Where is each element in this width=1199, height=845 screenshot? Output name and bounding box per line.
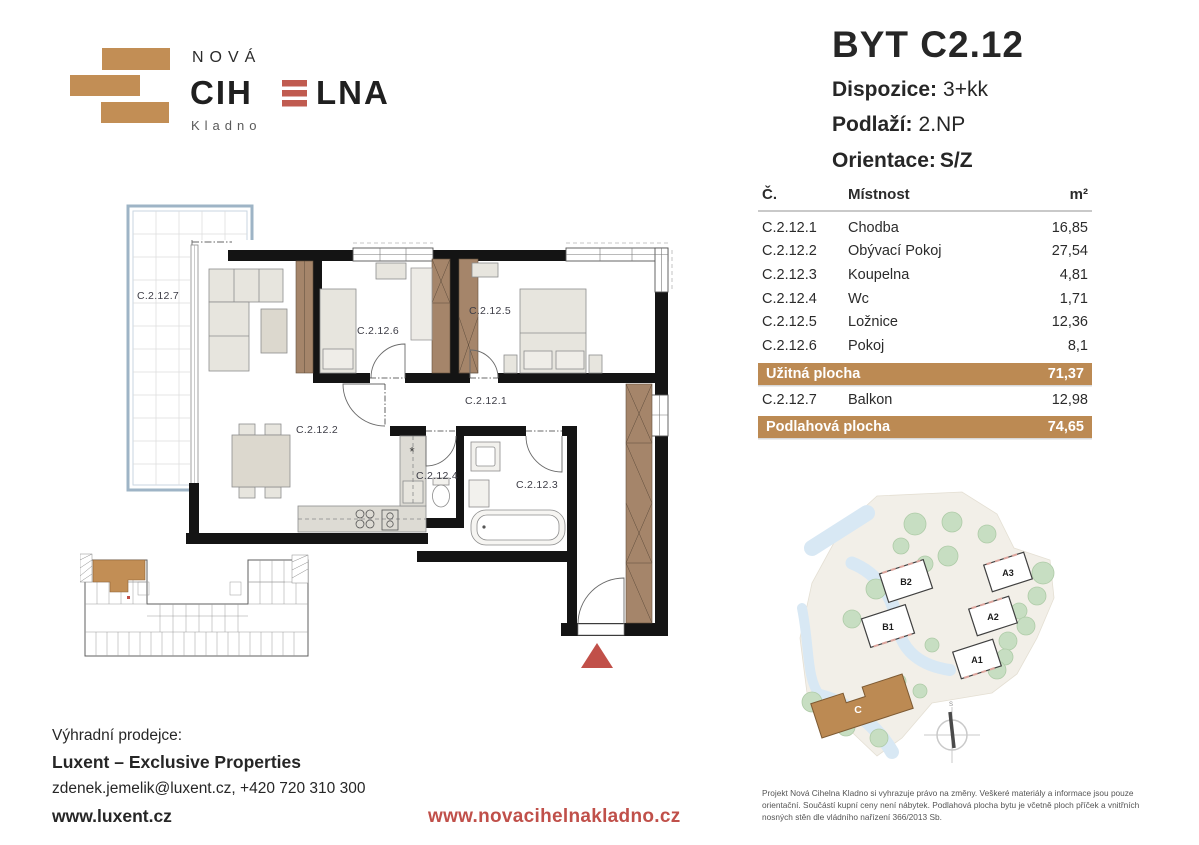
row-code: C.2.12.5 [762, 314, 848, 330]
spec-value: S/Z [940, 149, 973, 172]
entrance-threshold [578, 624, 624, 635]
building-label-a3: A3 [1002, 568, 1014, 578]
project-website-link[interactable]: www.novacihelnakladno.cz [428, 806, 681, 828]
page-title: BYT C2.12 [832, 26, 1172, 63]
building-label-a2: A2 [987, 612, 999, 622]
logo-city: Kladno [191, 118, 261, 133]
row-code: C.2.12.2 [762, 243, 848, 259]
row-name: Balkon [848, 392, 1016, 408]
row-area: 1,71 [1016, 291, 1088, 307]
table-row: C.2.12.4 Wc 1,71 [758, 287, 1092, 311]
logo-name-right: LNA [316, 74, 390, 111]
label-bedroom: C.2.12.5 [469, 305, 511, 317]
logo: NOVÁ CIH LNA Kladno [70, 40, 420, 140]
seller-block: Výhradní prodejce: Luxent – Exclusive Pr… [52, 727, 365, 827]
logo-top-text: NOVÁ [192, 47, 261, 66]
row-name: Wc [848, 291, 1016, 307]
spec-label: Dispozice: [832, 78, 937, 101]
row-code: C.2.12.4 [762, 291, 848, 307]
floorplan-sheet: NOVÁ CIH LNA Kladno BYT C2.12 Dispozice:… [0, 0, 1199, 845]
label-wc: C.2.12.4 [416, 470, 458, 482]
row-code: C.2.12.7 [762, 392, 848, 408]
spec-orientace: Orientace:S/Z [832, 148, 1172, 174]
building-label-b1: B1 [882, 622, 894, 632]
band-label: Podlahová plocha [766, 419, 1048, 435]
table-row-balcony: C.2.12.7 Balkon 12,98 [758, 389, 1092, 413]
boiler-symbol: * [409, 444, 414, 459]
row-name: Chodba [848, 220, 1016, 236]
band-value: 74,65 [1048, 419, 1084, 435]
unit-marker [127, 596, 130, 599]
table-row: C.2.12.2 Obývací Pokoj 27,54 [758, 240, 1092, 264]
table-row: C.2.12.5 Ložnice 12,36 [758, 310, 1092, 334]
band-value: 71,37 [1048, 366, 1084, 382]
disclaimer-text: Projekt Nová Cihelna Kladno si vyhrazuje… [762, 787, 1166, 823]
brick-icon [70, 48, 170, 123]
floor-area-band: Podlahová plocha 74,65 [758, 416, 1092, 438]
table-row: C.2.12.1 Chodba 16,85 [758, 216, 1092, 240]
label-room: C.2.12.6 [357, 325, 399, 337]
row-area: 4,81 [1016, 267, 1088, 283]
usable-area-band: Užitná plocha 71,37 [758, 363, 1092, 385]
seller-label: Výhradní prodejce: [52, 727, 365, 745]
band-label: Užitná plocha [766, 366, 1048, 382]
wardrobe [626, 384, 652, 623]
row-code: C.2.12.3 [762, 267, 848, 283]
room-area-table: Č. Místnost m² C.2.12.1 Chodba 16,85 C.2… [758, 186, 1092, 438]
row-area: 8,1 [1016, 338, 1088, 354]
highlighted-unit [93, 560, 145, 592]
row-name: Pokoj [848, 338, 1016, 354]
col-code: Č. [762, 186, 848, 203]
seller-name: Luxent – Exclusive Properties [52, 752, 365, 773]
building-label-b2: B2 [900, 577, 912, 587]
compass-icon: S [924, 702, 980, 763]
balcony-glass-wall [191, 245, 198, 487]
table-header: Č. Místnost m² [758, 186, 1092, 212]
spec-dispozice: Dispozice:3+kk [832, 77, 1172, 103]
building-label-a1: A1 [971, 655, 983, 665]
spec-value: 2.NP [919, 113, 966, 136]
seller-contact[interactable]: zdenek.jemelik@luxent.cz, +420 720 310 3… [52, 780, 365, 798]
building-label-c: C [854, 704, 862, 716]
row-area: 12,98 [1016, 392, 1088, 408]
label-bath: C.2.12.3 [516, 479, 558, 491]
site-plan: B2 B1 A3 A2 A1 C S [782, 488, 1114, 796]
spec-label: Podlaží: [832, 113, 913, 136]
row-area: 12,36 [1016, 314, 1088, 330]
seller-website-link[interactable]: www.luxent.cz [52, 806, 365, 827]
table-row: C.2.12.3 Koupelna 4,81 [758, 263, 1092, 287]
logo-name-left: CIH [190, 74, 253, 111]
row-name: Koupelna [848, 267, 1016, 283]
compass-north-label: S [949, 702, 953, 708]
label-hall: C.2.12.1 [465, 395, 507, 407]
row-code: C.2.12.1 [762, 220, 848, 236]
logo-e-bars-icon [282, 80, 307, 107]
spec-value: 3+kk [943, 78, 988, 101]
table-row: C.2.12.6 Pokoj 8,1 [758, 334, 1092, 358]
spec-podlazi: Podlaží:2.NP [832, 112, 1172, 138]
label-balcony: C.2.12.7 [137, 290, 179, 302]
label-living: C.2.12.2 [296, 424, 338, 436]
row-area: 16,85 [1016, 220, 1088, 236]
dining-table [232, 424, 290, 498]
row-code: C.2.12.6 [762, 338, 848, 354]
toilet [433, 478, 450, 507]
row-area: 27,54 [1016, 243, 1088, 259]
unit-header: BYT C2.12 Dispozice:3+kk Podlaží:2.NP Or… [832, 26, 1172, 174]
col-room: Místnost [848, 186, 1016, 203]
building-level-miniplan [80, 552, 312, 666]
col-area: m² [1016, 186, 1088, 203]
row-name: Ložnice [848, 314, 1016, 330]
wardrobe [432, 259, 450, 373]
spec-label: Orientace: [832, 149, 936, 172]
row-name: Obývací Pokoj [848, 243, 1016, 259]
